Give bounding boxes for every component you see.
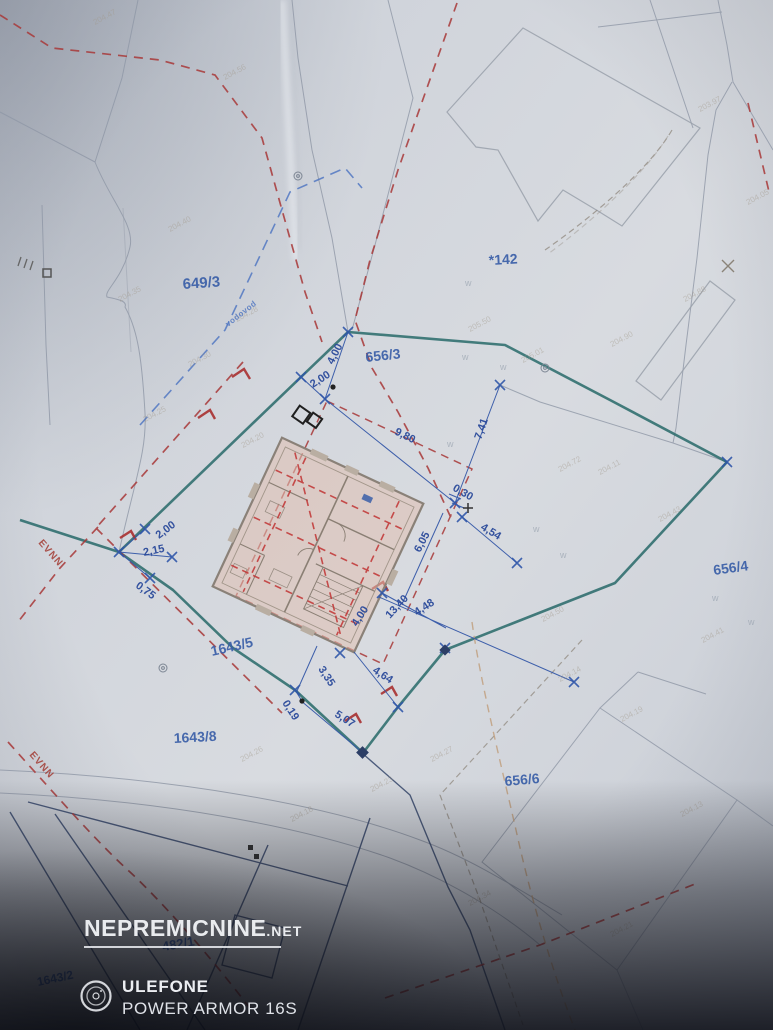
boundary-mark-label: w xyxy=(446,439,454,449)
cadastral-map: 204.47204.56204.40204.35204.28204.30204.… xyxy=(0,0,773,1030)
boundary-mark-label: w xyxy=(499,362,507,372)
photo-corner-shadow xyxy=(0,700,773,1030)
parcel-number-label: 649/3 xyxy=(182,273,221,293)
boundary-mark-label: w xyxy=(559,550,567,560)
parcel-number-label: *142 xyxy=(488,250,518,267)
point-dot xyxy=(330,384,335,389)
boundary-mark-label: w xyxy=(464,278,472,288)
scanned-site-plan-photo: 204.47204.56204.40204.35204.28204.30204.… xyxy=(0,0,773,1030)
watermark-tld: .NET xyxy=(266,923,302,939)
device-model: POWER ARMOR 16S xyxy=(122,999,297,1018)
boundary-mark-label: w xyxy=(711,593,719,603)
device-brand: ULEFONE xyxy=(122,977,209,996)
boundary-mark-label: w xyxy=(747,617,755,627)
boundary-mark-label: w xyxy=(532,524,540,534)
watermark-brand: NEPREMICNINE xyxy=(84,915,266,941)
boundary-mark-label: w xyxy=(461,352,469,362)
